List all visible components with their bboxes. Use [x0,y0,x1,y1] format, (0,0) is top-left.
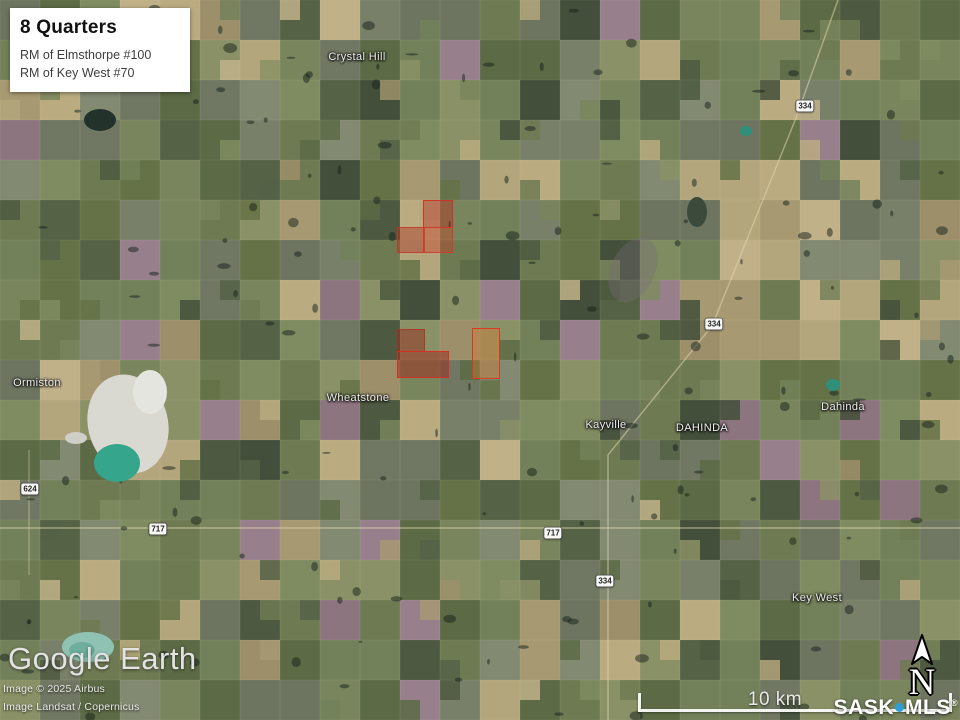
parcel-highlight [424,227,453,253]
registered-mark: ® [951,698,958,708]
sask-text: SASK [834,696,894,719]
parcel-highlight [423,200,453,228]
listing-rm-line-1: RM of Elmsthorpe #100 [20,47,180,65]
place-label: Kayville [585,419,626,431]
google-earth-logo: Google Earth [8,641,197,677]
map-canvas[interactable]: Crystal HillOrmistonWheatstoneKayvilleDA… [0,0,960,720]
listing-title-card: 8 Quarters RM of Elmsthorpe #100 RM of K… [10,8,190,92]
north-letter: N [903,666,941,700]
imagery-credit-2: Image Landsat / Copernicus [3,701,140,713]
road-shield: 334 [705,319,722,330]
road-shield: 717 [149,524,166,535]
road-shield: 624 [21,484,38,495]
place-label: Ormiston [13,377,61,389]
place-label: Dahinda [821,401,865,413]
listing-rm-line-2: RM of Key West #70 [20,65,180,83]
place-label: Key West [792,592,842,604]
north-compass: N [903,634,941,700]
mls-dot-icon [895,703,904,712]
listing-title: 8 Quarters [20,17,180,39]
parcel-highlight [397,351,449,378]
road-shield: 334 [796,101,813,112]
place-label: Wheatstone [327,392,390,404]
road-shield: 334 [596,576,613,587]
parcel-highlight [472,328,500,379]
parcel-highlight [397,329,425,352]
mls-text: MLS [905,696,951,719]
parcel-highlight [397,227,424,253]
place-label: DAHINDA [676,422,728,434]
road-shield: 717 [544,528,561,539]
place-label: Crystal Hill [328,51,385,63]
sask-mls-logo: SASKMLS® [834,696,958,720]
imagery-credit-1: Image © 2025 Airbus [3,683,105,695]
